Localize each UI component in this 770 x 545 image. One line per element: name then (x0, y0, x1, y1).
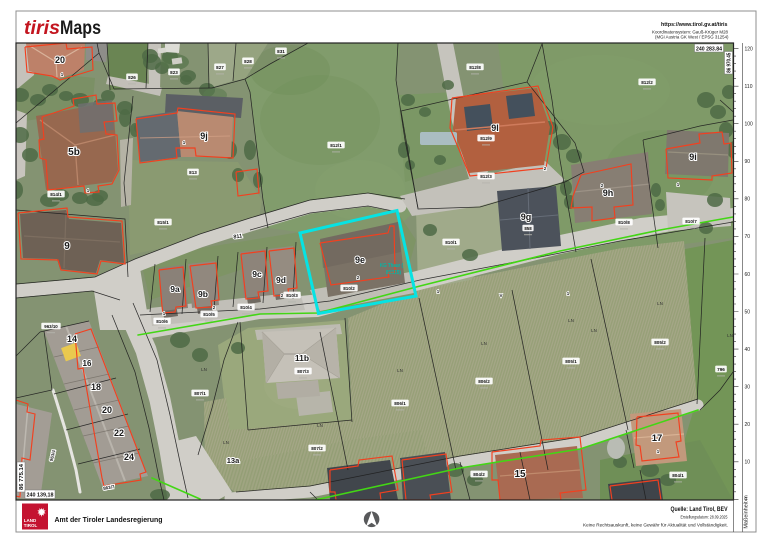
svg-text:810/3: 810/3 (286, 293, 298, 298)
svg-text:9c: 9c (252, 269, 262, 279)
svg-text:17: 17 (652, 433, 663, 444)
svg-text:9l: 9l (491, 123, 499, 133)
svg-text:LN: LN (727, 333, 733, 338)
svg-text:Maps: Maps (60, 18, 101, 39)
svg-text:810/1: 810/1 (445, 240, 457, 245)
svg-text:814/1: 814/1 (50, 192, 62, 197)
svg-text:18: 18 (91, 382, 101, 392)
svg-text:(MGI Austria GK West / EPSG 31: (MGI Austria GK West / EPSG 31254) (655, 35, 729, 40)
svg-text:805/1: 805/1 (565, 359, 577, 364)
svg-text:828: 828 (244, 59, 252, 64)
svg-text:9i: 9i (689, 152, 697, 162)
svg-text:LN: LN (223, 440, 229, 445)
svg-text:Erstellungsdatum: 28.09.2025: Erstellungsdatum: 28.09.2025 (681, 515, 728, 520)
svg-text:KG Thaur (: KG Thaur ( (380, 263, 403, 269)
svg-text:810/2: 810/2 (343, 286, 355, 291)
svg-text:40: 40 (745, 347, 751, 353)
svg-text:9: 9 (64, 241, 70, 252)
svg-text:60: 60 (745, 272, 751, 278)
svg-text:22: 22 (114, 428, 124, 438)
svg-text:16: 16 (83, 359, 92, 368)
svg-text:70: 70 (745, 234, 751, 240)
svg-text:LN: LN (481, 341, 487, 346)
svg-text:9g: 9g (521, 212, 532, 222)
svg-text:9b: 9b (198, 289, 208, 299)
svg-text:LN: LN (591, 328, 597, 333)
svg-text:9j: 9j (200, 131, 208, 141)
svg-text:806/2: 806/2 (478, 379, 490, 384)
svg-text:11b: 11b (295, 353, 309, 363)
svg-text:812/3: 812/3 (480, 174, 492, 179)
svg-text:9h: 9h (603, 188, 614, 198)
svg-text:50: 50 (745, 309, 751, 315)
svg-text:240 283.84: 240 283.84 (696, 46, 722, 52)
svg-text:LN: LN (317, 423, 323, 428)
svg-text:823: 823 (170, 70, 178, 75)
svg-text:9e: 9e (355, 255, 365, 265)
svg-text:24: 24 (124, 452, 134, 462)
svg-text:813: 813 (189, 170, 197, 175)
svg-text:LN: LN (568, 318, 574, 323)
svg-text:807/3: 807/3 (297, 369, 309, 374)
svg-text:807/2: 807/2 (311, 446, 323, 451)
svg-text:796: 796 (717, 367, 725, 372)
svg-text:812/8: 812/8 (469, 65, 481, 70)
svg-text:81015): 81015) (386, 270, 401, 276)
svg-text:TIROL: TIROL (24, 523, 38, 528)
svg-text:810/8: 810/8 (618, 220, 630, 225)
svg-text:15: 15 (514, 469, 526, 480)
svg-text:V: V (499, 293, 502, 298)
svg-text:LN: LN (657, 301, 663, 306)
svg-text:14: 14 (67, 334, 77, 344)
svg-text:5b: 5b (68, 147, 80, 158)
svg-text:90: 90 (745, 159, 751, 165)
svg-text:https://www.tirol.gv.at/tiris: https://www.tirol.gv.at/tiris (661, 22, 728, 28)
svg-text:810/4: 810/4 (240, 305, 252, 310)
svg-text:963/10: 963/10 (44, 324, 58, 329)
svg-text:LN: LN (397, 368, 403, 373)
svg-text:20: 20 (745, 422, 751, 428)
svg-text:807/1: 807/1 (194, 391, 206, 396)
svg-text:810/7: 810/7 (685, 219, 697, 224)
svg-text:812/1: 812/1 (330, 143, 342, 148)
svg-text:812/9: 812/9 (480, 136, 492, 141)
svg-text:100: 100 (745, 122, 754, 128)
svg-text:13a: 13a (227, 456, 240, 465)
svg-text:30: 30 (745, 384, 751, 390)
svg-text:826: 826 (128, 75, 136, 80)
svg-text:20: 20 (102, 405, 112, 415)
svg-text:858: 858 (524, 226, 532, 231)
svg-text:804/2: 804/2 (473, 472, 485, 477)
svg-text:80: 80 (745, 197, 751, 203)
svg-text:86 775.14: 86 775.14 (19, 464, 25, 490)
svg-text:812/2: 812/2 (641, 80, 653, 85)
svg-text:10: 10 (745, 460, 751, 466)
svg-text:811: 811 (233, 233, 243, 240)
svg-text:Keine Rechtsauskunft, keine Ge: Keine Rechtsauskunft, keine Gewähr für A… (583, 522, 728, 527)
svg-text:810/5: 810/5 (203, 312, 215, 317)
svg-text:806/1: 806/1 (394, 401, 406, 406)
svg-text:110: 110 (745, 84, 753, 90)
svg-text:Quelle: Land Tirol, BEV: Quelle: Land Tirol, BEV (671, 506, 729, 513)
svg-text:LN: LN (201, 367, 207, 372)
svg-text:805/2: 805/2 (654, 340, 666, 345)
svg-text:9d: 9d (276, 275, 286, 285)
svg-text:240 139,18: 240 139,18 (27, 493, 54, 499)
svg-text:20: 20 (55, 55, 65, 65)
svg-text:9a: 9a (170, 284, 180, 294)
svg-text:86 970.45: 86 970.45 (726, 53, 732, 73)
svg-text:815/1: 815/1 (157, 220, 169, 225)
svg-text:831: 831 (277, 49, 285, 54)
svg-text:Maßeinheit m: Maßeinheit m (744, 495, 750, 529)
svg-text:120: 120 (745, 46, 754, 52)
svg-text:827: 827 (216, 65, 224, 70)
svg-text:Amt der Tiroler Landesregierun: Amt der Tiroler Landesregierung (55, 515, 163, 524)
svg-text:804/1: 804/1 (672, 473, 684, 478)
svg-text:tiris: tiris (24, 18, 60, 39)
svg-text:810/6: 810/6 (156, 319, 168, 324)
